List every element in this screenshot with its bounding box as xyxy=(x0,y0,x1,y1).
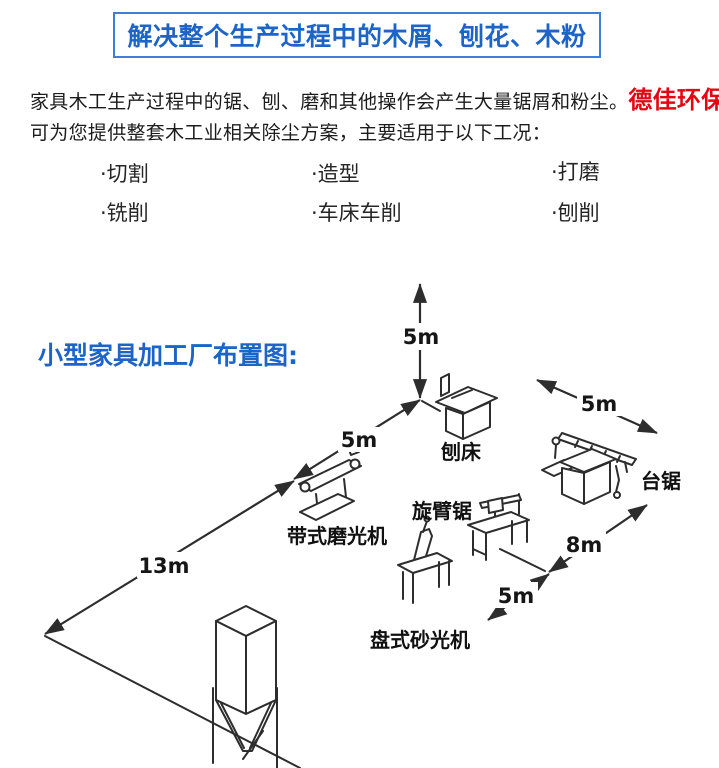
left-lower-dimension-label: 13m xyxy=(138,554,189,578)
dust-collector-silo-drawing xyxy=(213,606,277,768)
brochure-page: 解决整个生产过程中的木屑、刨花、木粉 家具木工生产过程中的锯、刨、磨和其他操作会… xyxy=(0,0,719,768)
right-lower-dimension-label: 5m xyxy=(498,584,535,608)
disc-sander-label: 盘式砂光机 xyxy=(370,628,470,652)
left-upper-dimension-label: 5m xyxy=(341,428,378,452)
height-dimension-label: 5m xyxy=(403,325,440,349)
right-upper-dimension-label: 8m xyxy=(566,533,603,557)
planer-label: 刨床 xyxy=(440,440,482,464)
radial-arm-saw-drawing xyxy=(468,494,529,560)
radial-arm-saw-label: 旋臂锯 xyxy=(411,499,472,523)
top-right-dimension-label: 5m xyxy=(581,392,618,416)
planer-drawing xyxy=(436,374,497,439)
radial-saw-connector-line xyxy=(500,549,545,571)
table-saw-drawing xyxy=(542,433,636,504)
factory-layout-diagram: 5m 5m 13m 5m 8m 5m 刨床 台锯 带式磨光机 旋臂锯 盘式砂光机 xyxy=(0,0,719,768)
disc-sander-drawing xyxy=(398,517,452,604)
table-saw-label: 台锯 xyxy=(641,469,681,493)
belt-sander-label: 带式磨光机 xyxy=(287,524,387,548)
